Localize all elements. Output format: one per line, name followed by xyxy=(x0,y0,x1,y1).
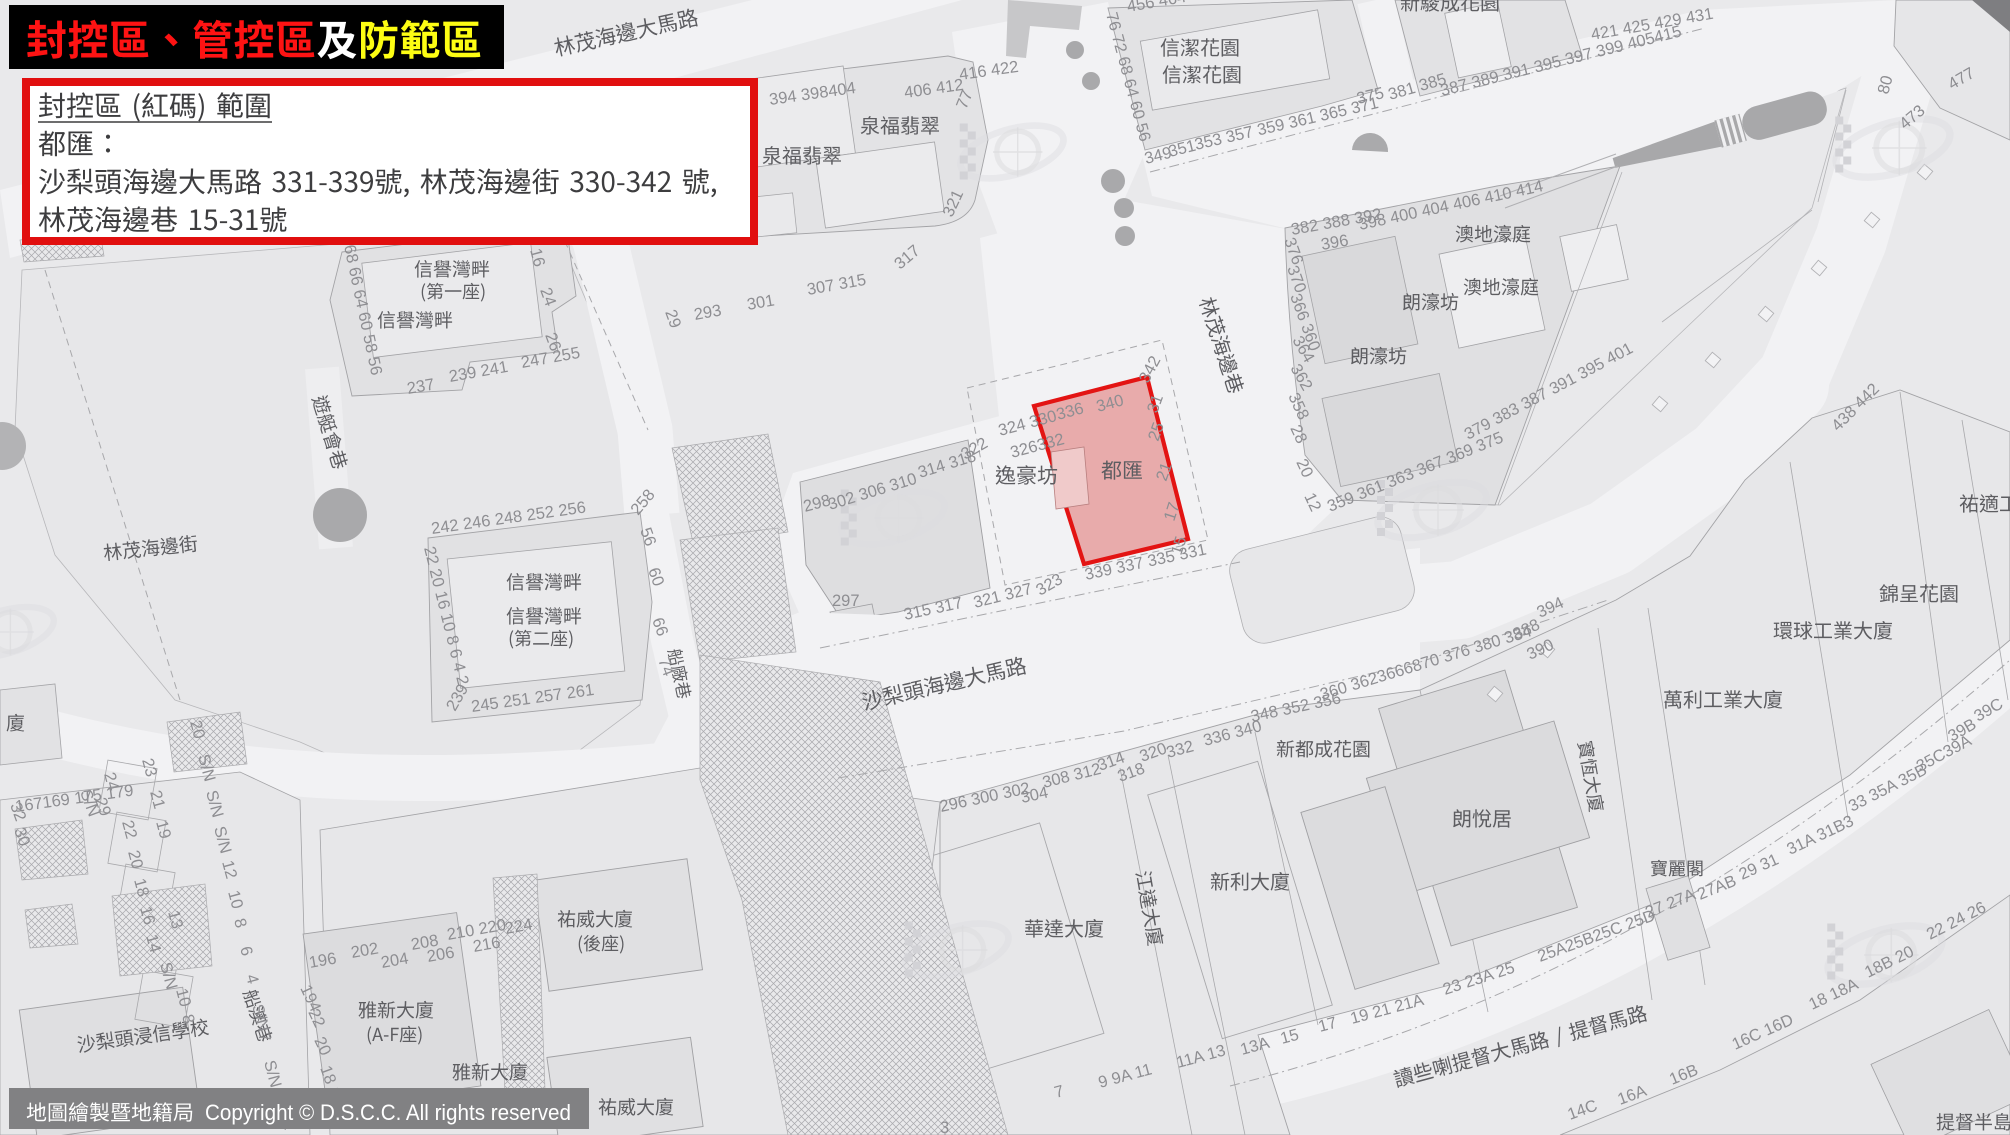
svg-text:Copyright © D.S.C.C. All right: Copyright © D.S.C.C. All rights reserved xyxy=(205,1100,571,1125)
svg-text:297: 297 xyxy=(832,592,860,610)
svg-text:3: 3 xyxy=(940,1119,949,1135)
